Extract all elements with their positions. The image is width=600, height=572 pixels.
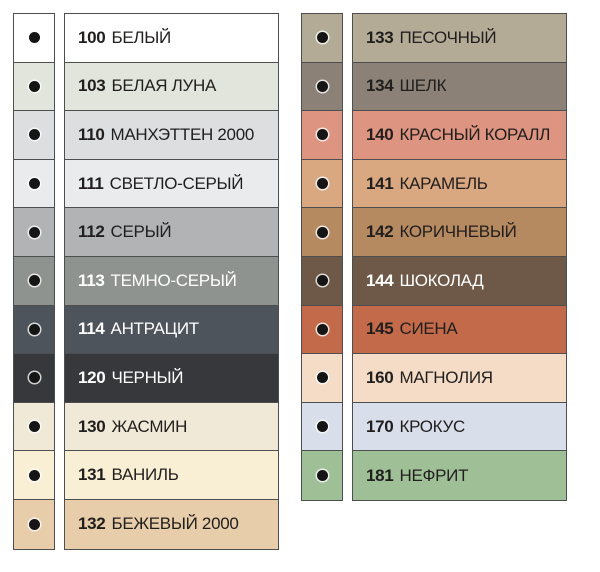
swatch-cell bbox=[14, 306, 54, 355]
swatch-cell bbox=[302, 14, 342, 63]
color-dot-icon bbox=[317, 421, 328, 432]
color-name: КРОКУС bbox=[399, 417, 464, 437]
label-cell: 100БЕЛЫЙ bbox=[65, 14, 278, 63]
label-cell: 142КОРИЧНЕВЫЙ bbox=[353, 208, 566, 257]
label-cell: 170КРОКУС bbox=[353, 403, 566, 452]
color-code: 111 bbox=[78, 174, 104, 194]
label-cell: 110МАНХЭТТЕН 2000 bbox=[65, 111, 278, 160]
swatch-cell bbox=[302, 111, 342, 160]
color-name: БЕЖЕВЫЙ 2000 bbox=[111, 514, 238, 534]
label-cell: 113ТЕМНО-СЕРЫЙ bbox=[65, 257, 278, 306]
swatch-cell bbox=[14, 500, 54, 549]
color-code: 140 bbox=[366, 125, 393, 145]
color-dot-icon bbox=[29, 227, 40, 238]
color-dot-icon bbox=[29, 372, 40, 383]
swatch-cell bbox=[302, 451, 342, 500]
color-dot-icon bbox=[29, 324, 40, 335]
color-code: 103 bbox=[78, 76, 105, 96]
color-name: СЕРЫЙ bbox=[111, 222, 172, 242]
color-dot-icon bbox=[29, 178, 40, 189]
swatch-cell bbox=[14, 451, 54, 500]
color-name: ЖАСМИН bbox=[111, 417, 187, 437]
palette-column-left: 100БЕЛЫЙ103БЕЛАЯ ЛУНА110МАНХЭТТЕН 200011… bbox=[13, 13, 279, 550]
label-cell: 133ПЕСОЧНЫЙ bbox=[353, 14, 566, 63]
label-cell: 114АНТРАЦИТ bbox=[65, 306, 278, 355]
palette-column-right: 133ПЕСОЧНЫЙ134ШЕЛК140КРАСНЫЙ КОРАЛЛ141КА… bbox=[301, 13, 567, 501]
color-name: КРАСНЫЙ КОРАЛЛ bbox=[399, 125, 550, 145]
color-dot-icon bbox=[29, 421, 40, 432]
color-code: 134 bbox=[366, 76, 393, 96]
color-dot-icon bbox=[317, 372, 328, 383]
swatch-cell bbox=[14, 354, 54, 403]
swatch-cell bbox=[302, 63, 342, 112]
color-code: 120 bbox=[78, 368, 105, 388]
label-cell: 111СВЕТЛО-СЕРЫЙ bbox=[65, 160, 278, 209]
color-chart: 100БЕЛЫЙ103БЕЛАЯ ЛУНА110МАНХЭТТЕН 200011… bbox=[0, 0, 600, 572]
label-cell: 130ЖАСМИН bbox=[65, 403, 278, 452]
label-cell: 120ЧЕРНЫЙ bbox=[65, 354, 278, 403]
color-name: ШОКОЛАД bbox=[399, 271, 483, 291]
color-dot-icon bbox=[29, 470, 40, 481]
swatch-cell bbox=[14, 14, 54, 63]
color-code: 132 bbox=[78, 514, 105, 534]
color-dot-icon bbox=[317, 470, 328, 481]
color-code: 160 bbox=[366, 368, 393, 388]
swatch-cell bbox=[302, 257, 342, 306]
color-code: 114 bbox=[78, 319, 105, 339]
label-cell: 112СЕРЫЙ bbox=[65, 208, 278, 257]
color-code: 181 bbox=[366, 466, 393, 486]
label-cell: 132БЕЖЕВЫЙ 2000 bbox=[65, 500, 278, 549]
swatch-cell bbox=[302, 306, 342, 355]
color-dot-icon bbox=[317, 81, 328, 92]
label-cell: 160МАГНОЛИЯ bbox=[353, 354, 566, 403]
label-cell: 134ШЕЛК bbox=[353, 63, 566, 112]
color-name: ЧЕРНЫЙ bbox=[111, 368, 183, 388]
color-name: КОРИЧНЕВЫЙ bbox=[399, 222, 516, 242]
swatch-column bbox=[301, 13, 343, 501]
label-cell: 181НЕФРИТ bbox=[353, 451, 566, 500]
label-cell: 103БЕЛАЯ ЛУНА bbox=[65, 63, 278, 112]
color-dot-icon bbox=[317, 129, 328, 140]
label-cell: 144ШОКОЛАД bbox=[353, 257, 566, 306]
color-code: 141 bbox=[366, 174, 393, 194]
swatch-cell bbox=[302, 160, 342, 209]
color-name: ТЕМНО-СЕРЫЙ bbox=[111, 271, 237, 291]
color-code: 110 bbox=[78, 125, 105, 145]
swatch-cell bbox=[302, 403, 342, 452]
color-name: МАГНОЛИЯ bbox=[399, 368, 492, 388]
color-code: 145 bbox=[366, 319, 393, 339]
swatch-cell bbox=[14, 403, 54, 452]
color-dot-icon bbox=[29, 81, 40, 92]
color-code: 170 bbox=[366, 417, 393, 437]
color-dot-icon bbox=[29, 32, 40, 43]
label-cell: 140КРАСНЫЙ КОРАЛЛ bbox=[353, 111, 566, 160]
color-dot-icon bbox=[317, 227, 328, 238]
color-dot-icon bbox=[317, 324, 328, 335]
color-name: ВАНИЛЬ bbox=[111, 465, 178, 485]
color-name: БЕЛЫЙ bbox=[111, 28, 170, 48]
color-name: КАРАМЕЛЬ bbox=[399, 174, 487, 194]
color-dot-icon bbox=[29, 129, 40, 140]
swatch-cell bbox=[14, 63, 54, 112]
color-name: АНТРАЦИТ bbox=[111, 319, 199, 339]
color-code: 113 bbox=[78, 271, 105, 291]
label-cell: 145СИЕНА bbox=[353, 306, 566, 355]
label-cell: 131ВАНИЛЬ bbox=[65, 451, 278, 500]
color-code: 130 bbox=[78, 417, 105, 437]
label-column: 100БЕЛЫЙ103БЕЛАЯ ЛУНА110МАНХЭТТЕН 200011… bbox=[64, 13, 279, 550]
swatch-cell bbox=[302, 354, 342, 403]
swatch-cell bbox=[14, 160, 54, 209]
color-code: 112 bbox=[78, 222, 105, 242]
color-dot-icon bbox=[29, 519, 40, 530]
color-dot-icon bbox=[317, 275, 328, 286]
color-code: 144 bbox=[366, 271, 393, 291]
color-name: СВЕТЛО-СЕРЫЙ bbox=[110, 174, 244, 194]
swatch-cell bbox=[302, 208, 342, 257]
color-name: СИЕНА bbox=[399, 319, 457, 339]
color-code: 131 bbox=[78, 465, 105, 485]
color-code: 133 bbox=[366, 28, 393, 48]
color-name: МАНХЭТТЕН 2000 bbox=[111, 125, 254, 145]
color-code: 100 bbox=[78, 28, 105, 48]
color-name: НЕФРИТ bbox=[399, 466, 468, 486]
color-code: 142 bbox=[366, 222, 393, 242]
color-name: БЕЛАЯ ЛУНА bbox=[111, 76, 216, 96]
swatch-cell bbox=[14, 257, 54, 306]
color-dot-icon bbox=[317, 32, 328, 43]
color-dot-icon bbox=[317, 178, 328, 189]
swatch-cell bbox=[14, 208, 54, 257]
label-cell: 141КАРАМЕЛЬ bbox=[353, 160, 566, 209]
label-column: 133ПЕСОЧНЫЙ134ШЕЛК140КРАСНЫЙ КОРАЛЛ141КА… bbox=[352, 13, 567, 501]
swatch-cell bbox=[14, 111, 54, 160]
color-name: ШЕЛК bbox=[399, 76, 446, 96]
color-name: ПЕСОЧНЫЙ bbox=[399, 28, 496, 48]
color-dot-icon bbox=[29, 275, 40, 286]
swatch-column bbox=[13, 13, 55, 550]
